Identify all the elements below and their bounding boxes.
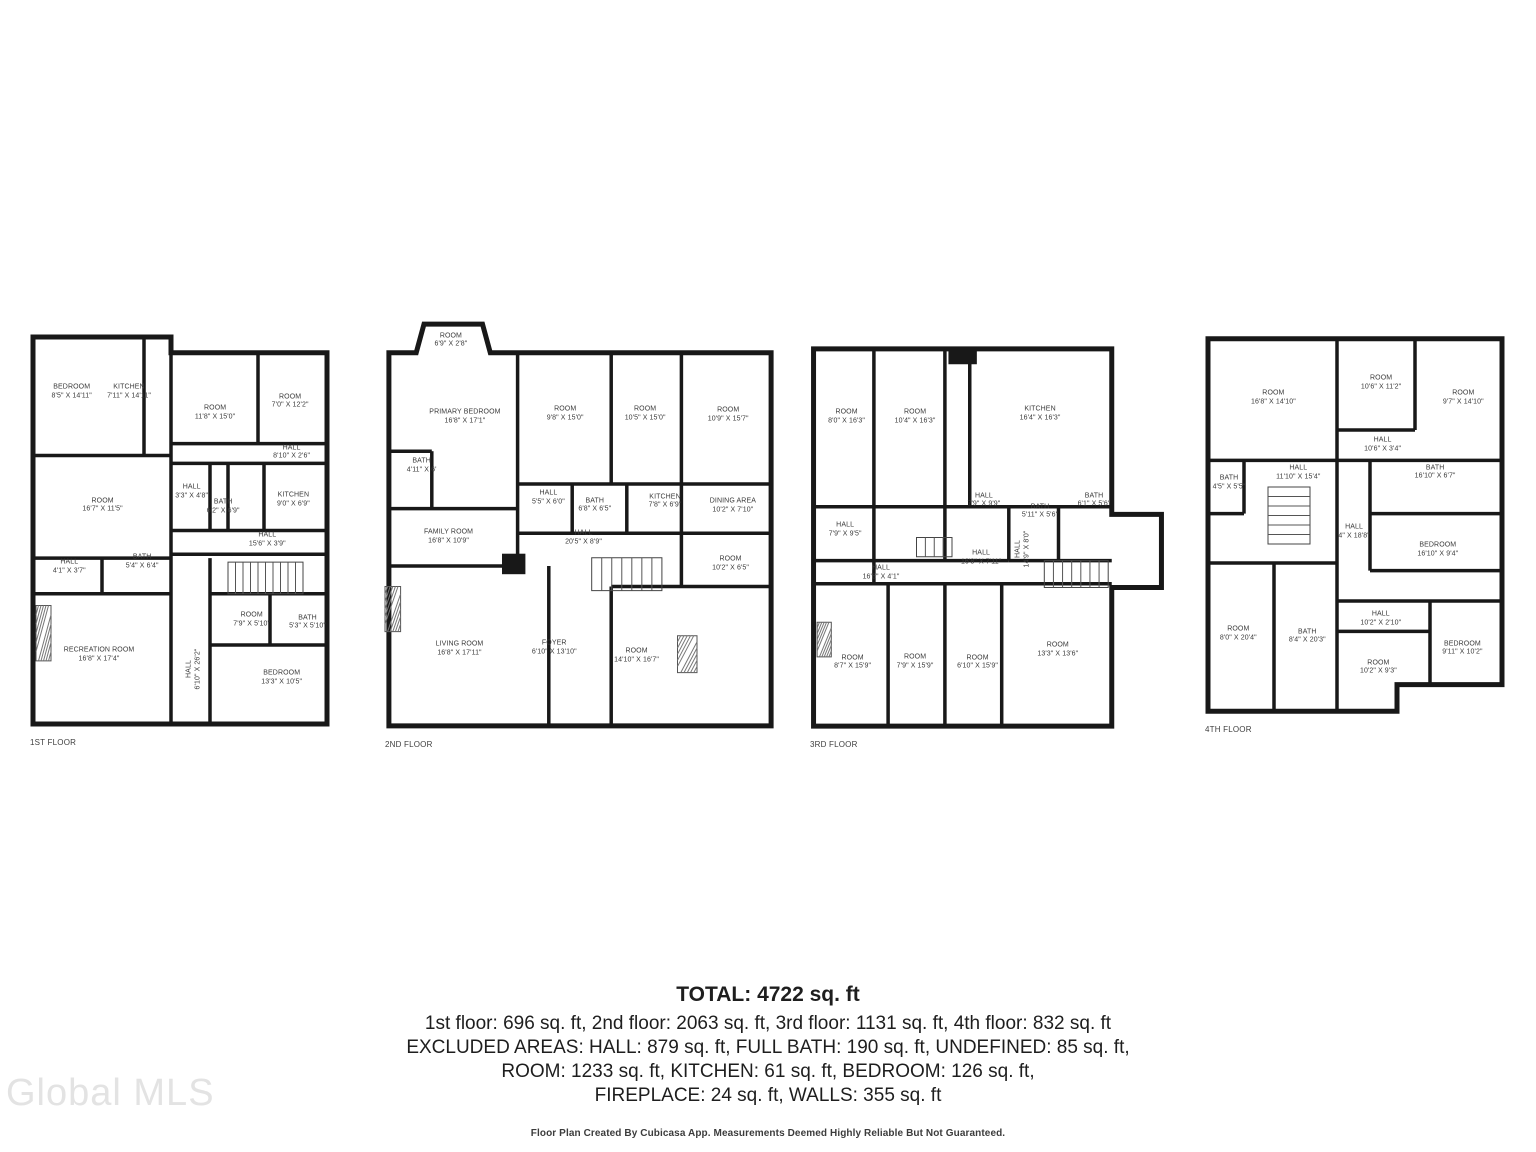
room-label-bath: BATH5'11" X 5'6" (1022, 503, 1058, 521)
room-label-room: ROOM6'10" X 15'9" (957, 654, 998, 672)
room-dimensions: 10'2" X 7'10" (710, 506, 756, 515)
room-dimensions: 9'11" X 10'2" (1442, 649, 1482, 658)
room-name: ROOM (625, 405, 666, 414)
room-label-hall: HALL10'2" X 2'10" (1360, 610, 1401, 628)
room-dimensions: 4" X 18'8" (1338, 532, 1369, 541)
room-name: HALL (1276, 465, 1320, 474)
room-label-foyer: FOYER6'10" X 13'10" (532, 640, 577, 658)
room-name: BATH (289, 614, 326, 623)
room-label-hall: HALL20'5" X 8'9" (565, 529, 602, 547)
room-dimensions: 7'9" X 15'9" (897, 662, 934, 671)
room-name: HALL (249, 532, 286, 541)
room-name: HALL (565, 529, 602, 538)
room-label-kitchen: KITCHEN16'4" X 16'3" (1020, 405, 1061, 423)
room-dimensions: 3'3" X 4'8" (175, 492, 208, 501)
room-label-primary-bedroom: PRIMARY BEDROOM16'8" X 17'1" (429, 408, 500, 426)
room-name: BATH (407, 457, 437, 466)
room-name: BATH (1289, 628, 1326, 637)
excluded-areas-line-2: ROOM: 1233 sq. ft, KITCHEN: 61 sq. ft, B… (0, 1060, 1536, 1084)
room-dimensions: 8'10" X 2'6" (273, 453, 310, 462)
room-label-kitchen: KITCHEN7'11" X 14'11" (107, 383, 151, 401)
room-label-bath: BATH4'5" X 5'5" (1213, 474, 1246, 492)
room-name: ROOM (614, 647, 659, 656)
room-name: ROOM (547, 405, 584, 414)
room-dimensions: 6'10" X 15'9" (957, 663, 998, 672)
room-name: BATH (578, 497, 611, 506)
room-dimensions: 9'0" X 6'9" (277, 500, 310, 509)
room-dimensions: 8'0" X 20'4" (1220, 634, 1257, 643)
room-dimensions: 16'4" X 16'3" (1020, 414, 1061, 423)
floor-caption: 3RD FLOOR (810, 740, 858, 749)
room-name: RECREATION ROOM (64, 646, 135, 655)
room-name: BEDROOM (261, 669, 302, 678)
room-label-room: ROOM10'4" X 16'3" (895, 409, 936, 427)
room-dimensions: 13'3" X 10'5" (261, 678, 302, 687)
room-dimensions: 5'11" X 5'6" (1022, 512, 1058, 521)
room-label-hall: HALL7'9" X 9'9" (968, 492, 1001, 510)
disclaimer-text: Floor Plan Created By Cubicasa App. Meas… (0, 1128, 1536, 1139)
room-name: ROOM (897, 653, 934, 662)
room-label-room: ROOM6'9" X 2'8" (434, 332, 467, 350)
room-name: FAMILY ROOM (424, 528, 473, 537)
room-name: HALL (1364, 436, 1401, 445)
room-name: ROOM (82, 497, 122, 506)
room-dimensions: 16'8" X 14'10" (1251, 398, 1296, 407)
room-label-bath: BATH8'4" X 20'3" (1289, 628, 1326, 646)
room-dimensions: 6'10" X 13'10" (532, 648, 577, 657)
room-dimensions: 16'8" X 4'1" (863, 573, 900, 582)
room-label-hall: HALL8'10" X 2'6" (273, 444, 310, 462)
room-dimensions: 6'10" X 26'2" (194, 648, 203, 689)
room-label-hall: HALL16'8" X 7'11" (961, 550, 1001, 568)
room-name: ROOM (1220, 625, 1257, 634)
room-name: HALL (829, 521, 862, 530)
room-name: ROOM (434, 332, 467, 341)
floor-caption: 1ST FLOOR (30, 738, 76, 747)
room-name: HALL (863, 565, 900, 574)
room-name: ROOM (233, 611, 270, 620)
room-name: LIVING ROOM (436, 640, 484, 649)
room-dimensions: 4'11" X 6' (407, 466, 437, 475)
room-dimensions: 8'7" X 15'9" (834, 663, 871, 672)
room-dimensions: 16'8" X 10'9" (424, 537, 473, 546)
room-dimensions: 4'5" X 5'5" (1213, 483, 1246, 492)
room-name: HALL (273, 444, 310, 453)
room-label-hall: HALL4'1" X 3'7" (53, 558, 86, 576)
room-dimensions: 8'5" X 14'11" (52, 392, 92, 401)
room-label-hall: HALL16'8" X 4'1" (863, 565, 900, 583)
room-dimensions: 10'2" X 2'10" (1360, 619, 1401, 628)
total-area-text: TOTAL: 4722 sq. ft (0, 983, 1536, 1007)
room-name: ROOM (712, 555, 749, 564)
room-dimensions: 7'8" X 6'9" (649, 502, 682, 511)
room-name: BATH (207, 498, 240, 507)
room-dimensions: 20'5" X 8'9" (565, 538, 602, 547)
room-name: ROOM (828, 409, 865, 418)
room-name: ROOM (1360, 659, 1397, 668)
floor-walls-drawing (385, 320, 775, 730)
room-dimensions: 5'5" X 6'0" (532, 498, 565, 507)
watermark-logo: Global MLS (6, 1072, 215, 1115)
room-dimensions: 5'4" X 6'4" (126, 562, 159, 571)
room-name: BATH (1415, 464, 1456, 473)
room-dimensions: 16'10" X 6'7" (1415, 473, 1456, 482)
room-label-hall: HALL3'3" X 4'8" (175, 483, 208, 501)
room-label-bedroom: BEDROOM9'11" X 10'2" (1442, 640, 1482, 658)
room-dimensions: 10'9" X 15'7" (708, 415, 749, 424)
room-dimensions: 16'10" X 9'4" (1417, 550, 1458, 559)
room-name: HALL (961, 550, 1001, 559)
room-label-bath: BATH4'11" X 6' (407, 457, 437, 475)
room-dimensions: 10'6" X 11'2" (1361, 383, 1401, 392)
room-name: HALL (53, 558, 86, 567)
room-label-hall: HALL6'10" X 26'2" (186, 648, 204, 689)
room-name: HALL (175, 483, 208, 492)
floor-walls-drawing (810, 345, 1165, 730)
room-dimensions: 10'2" X 9'3" (1360, 668, 1397, 677)
room-label-room: ROOM7'9" X 15'9" (897, 653, 934, 671)
room-name: HALL (968, 492, 1001, 501)
room-label-bath: BATH6'8" X 6'5" (578, 497, 611, 515)
room-label-hall: HALL10'6" X 3'4" (1364, 436, 1401, 454)
room-dimensions: 8'0" X 16'3" (828, 417, 865, 426)
room-label-hall: HALL14'9" X 8'0" (1015, 531, 1033, 568)
room-label-room: ROOM10'2" X 9'3" (1360, 659, 1397, 677)
room-dimensions: 9'7" X 14'10" (1443, 398, 1484, 407)
room-dimensions: 5'3" X 5'10" (289, 623, 326, 632)
room-dimensions: 8'4" X 20'3" (1289, 637, 1326, 646)
room-label-bath: BATH6'1" X 5'6" (1078, 492, 1111, 510)
room-name: KITCHEN (1020, 405, 1061, 414)
room-dimensions: 16'8" X 17'1" (429, 417, 500, 426)
room-name: ROOM (895, 409, 936, 418)
room-label-room: ROOM16'8" X 14'10" (1251, 390, 1296, 408)
room-label-hall: HALL5'5" X 6'0" (532, 490, 565, 508)
room-name: BEDROOM (52, 383, 92, 392)
room-name: FOYER (532, 640, 577, 649)
room-name: KITCHEN (277, 491, 310, 500)
room-name: BEDROOM (1417, 541, 1458, 550)
room-dimensions: 4'1" X 3'7" (53, 567, 86, 576)
room-label-room: ROOM7'0" X 12'2" (272, 393, 309, 411)
room-label-dining-area: DINING AREA10'2" X 7'10" (710, 497, 756, 515)
room-label-bath: BATH5'3" X 5'10" (289, 614, 326, 632)
room-label-bedroom: BEDROOM8'5" X 14'11" (52, 383, 92, 401)
room-label-bath: BATH6'2" X 6'9" (207, 498, 240, 516)
room-dimensions: 6'2" X 6'9" (207, 507, 240, 516)
room-label-room: ROOM9'8" X 15'0" (547, 405, 584, 423)
room-label-room: ROOM13'3" X 13'6" (1037, 641, 1078, 659)
room-name: ROOM (272, 393, 309, 402)
room-name: HALL (1338, 523, 1369, 532)
excluded-areas-line-3: FIREPLACE: 24 sq. ft, WALLS: 355 sq. ft (0, 1084, 1536, 1108)
room-dimensions: 10'5" X 15'0" (625, 414, 666, 423)
room-dimensions: 9'8" X 15'0" (547, 414, 584, 423)
room-name: HALL (532, 490, 565, 499)
room-name: ROOM (834, 654, 871, 663)
room-dimensions: 6'1" X 5'6" (1078, 501, 1111, 510)
room-label-bath: BATH5'4" X 6'4" (126, 554, 159, 572)
room-dimensions: 6'8" X 6'5" (578, 506, 611, 515)
floorplan-canvas: BEDROOM8'5" X 14'11"KITCHEN7'11" X 14'11… (0, 0, 1536, 1152)
room-name: ROOM (1443, 390, 1484, 399)
floor-caption: 2ND FLOOR (385, 740, 433, 749)
room-dimensions: 11'10" X 15'4" (1276, 473, 1320, 482)
room-label-kitchen: KITCHEN9'0" X 6'9" (277, 491, 310, 509)
room-name: BATH (1078, 492, 1111, 501)
room-dimensions: 10'4" X 16'3" (895, 417, 936, 426)
room-name: ROOM (708, 406, 749, 415)
room-dimensions: 16'8" X 7'11" (961, 558, 1001, 567)
room-dimensions: 16'7" X 11'5" (82, 506, 122, 515)
room-label-room: ROOM8'0" X 20'4" (1220, 625, 1257, 643)
floor-plan-1st-floor: BEDROOM8'5" X 14'11"KITCHEN7'11" X 14'11… (30, 333, 330, 728)
room-label-living-room: LIVING ROOM16'8" X 17'11" (436, 640, 484, 658)
room-dimensions: 16'8" X 17'4" (64, 655, 135, 664)
room-dimensions: 7'0" X 12'2" (272, 402, 309, 411)
room-dimensions: 14'9" X 8'0" (1023, 531, 1032, 568)
room-label-room: ROOM16'7" X 11'5" (82, 497, 122, 515)
room-label-bedroom: BEDROOM16'10" X 9'4" (1417, 541, 1458, 559)
floor-caption: 4TH FLOOR (1205, 725, 1252, 734)
room-name: ROOM (195, 404, 235, 413)
room-label-room: ROOM8'7" X 15'9" (834, 654, 871, 672)
room-name: KITCHEN (107, 383, 151, 392)
room-dimensions: 15'6" X 3'9" (249, 540, 286, 549)
floor-areas-text: 1st floor: 696 sq. ft, 2nd floor: 2063 s… (0, 1012, 1536, 1036)
room-name: ROOM (957, 654, 998, 663)
room-name: KITCHEN (649, 493, 682, 502)
room-label-recreation-room: RECREATION ROOM16'8" X 17'4" (64, 646, 135, 664)
room-label-room: ROOM7'9" X 5'10" (233, 611, 270, 629)
room-dimensions: 7'11" X 14'11" (107, 392, 151, 401)
floor-plan-4th-floor: ROOM16'8" X 14'10"ROOM10'6" X 11'2"ROOM9… (1205, 335, 1505, 715)
room-label-hall: HALL4" X 18'8" (1338, 523, 1369, 541)
room-label-room: ROOM10'2" X 6'5" (712, 555, 749, 573)
room-name: ROOM (1361, 374, 1401, 383)
room-name: ROOM (1037, 641, 1078, 650)
floor-plan-3rd-floor: ROOM8'0" X 16'3"ROOM10'4" X 16'3"KITCHEN… (810, 345, 1165, 730)
excluded-areas-line-1: EXCLUDED AREAS: HALL: 879 sq. ft, FULL B… (0, 1036, 1536, 1060)
area-summary: TOTAL: 4722 sq. ft 1st floor: 696 sq. ft… (0, 983, 1536, 1139)
room-label-bath: BATH16'10" X 6'7" (1415, 464, 1456, 482)
room-label-hall: HALL11'10" X 15'4" (1276, 465, 1320, 483)
room-label-hall: HALL7'9" X 9'5" (829, 521, 862, 539)
room-label-room: ROOM8'0" X 16'3" (828, 409, 865, 427)
room-name: BEDROOM (1442, 640, 1482, 649)
room-dimensions: 10'6" X 3'4" (1364, 445, 1401, 454)
room-name: PRIMARY BEDROOM (429, 408, 500, 417)
room-label-bedroom: BEDROOM13'3" X 10'5" (261, 669, 302, 687)
room-name: BATH (126, 554, 159, 563)
room-label-family-room: FAMILY ROOM16'8" X 10'9" (424, 528, 473, 546)
room-dimensions: 6'9" X 2'8" (434, 341, 467, 350)
floor-plan-2nd-floor: ROOM6'9" X 2'8"PRIMARY BEDROOM16'8" X 17… (385, 320, 775, 730)
room-label-room: ROOM9'7" X 14'10" (1443, 390, 1484, 408)
room-dimensions: 7'9" X 5'10" (233, 620, 270, 629)
room-dimensions: 10'2" X 6'5" (712, 564, 749, 573)
room-label-hall: HALL15'6" X 3'9" (249, 532, 286, 550)
room-name: DINING AREA (710, 497, 756, 506)
room-dimensions: 7'9" X 9'5" (829, 530, 862, 539)
room-dimensions: 16'8" X 17'11" (436, 649, 484, 658)
room-dimensions: 7'9" X 9'9" (968, 501, 1001, 510)
room-name: BATH (1213, 474, 1246, 483)
room-label-room: ROOM11'8" X 15'0" (195, 404, 235, 422)
room-label-room: ROOM14'10" X 16'7" (614, 647, 659, 665)
room-dimensions: 11'8" X 15'0" (195, 413, 235, 422)
room-name: BATH (1022, 503, 1058, 512)
room-name: ROOM (1251, 390, 1296, 399)
room-name: HALL (1360, 610, 1401, 619)
room-label-kitchen: KITCHEN7'8" X 6'9" (649, 493, 682, 511)
room-dimensions: 14'10" X 16'7" (614, 656, 659, 665)
room-dimensions: 13'3" X 13'6" (1037, 650, 1078, 659)
room-label-room: ROOM10'6" X 11'2" (1361, 374, 1401, 392)
room-label-room: ROOM10'9" X 15'7" (708, 406, 749, 424)
room-label-room: ROOM10'5" X 15'0" (625, 405, 666, 423)
